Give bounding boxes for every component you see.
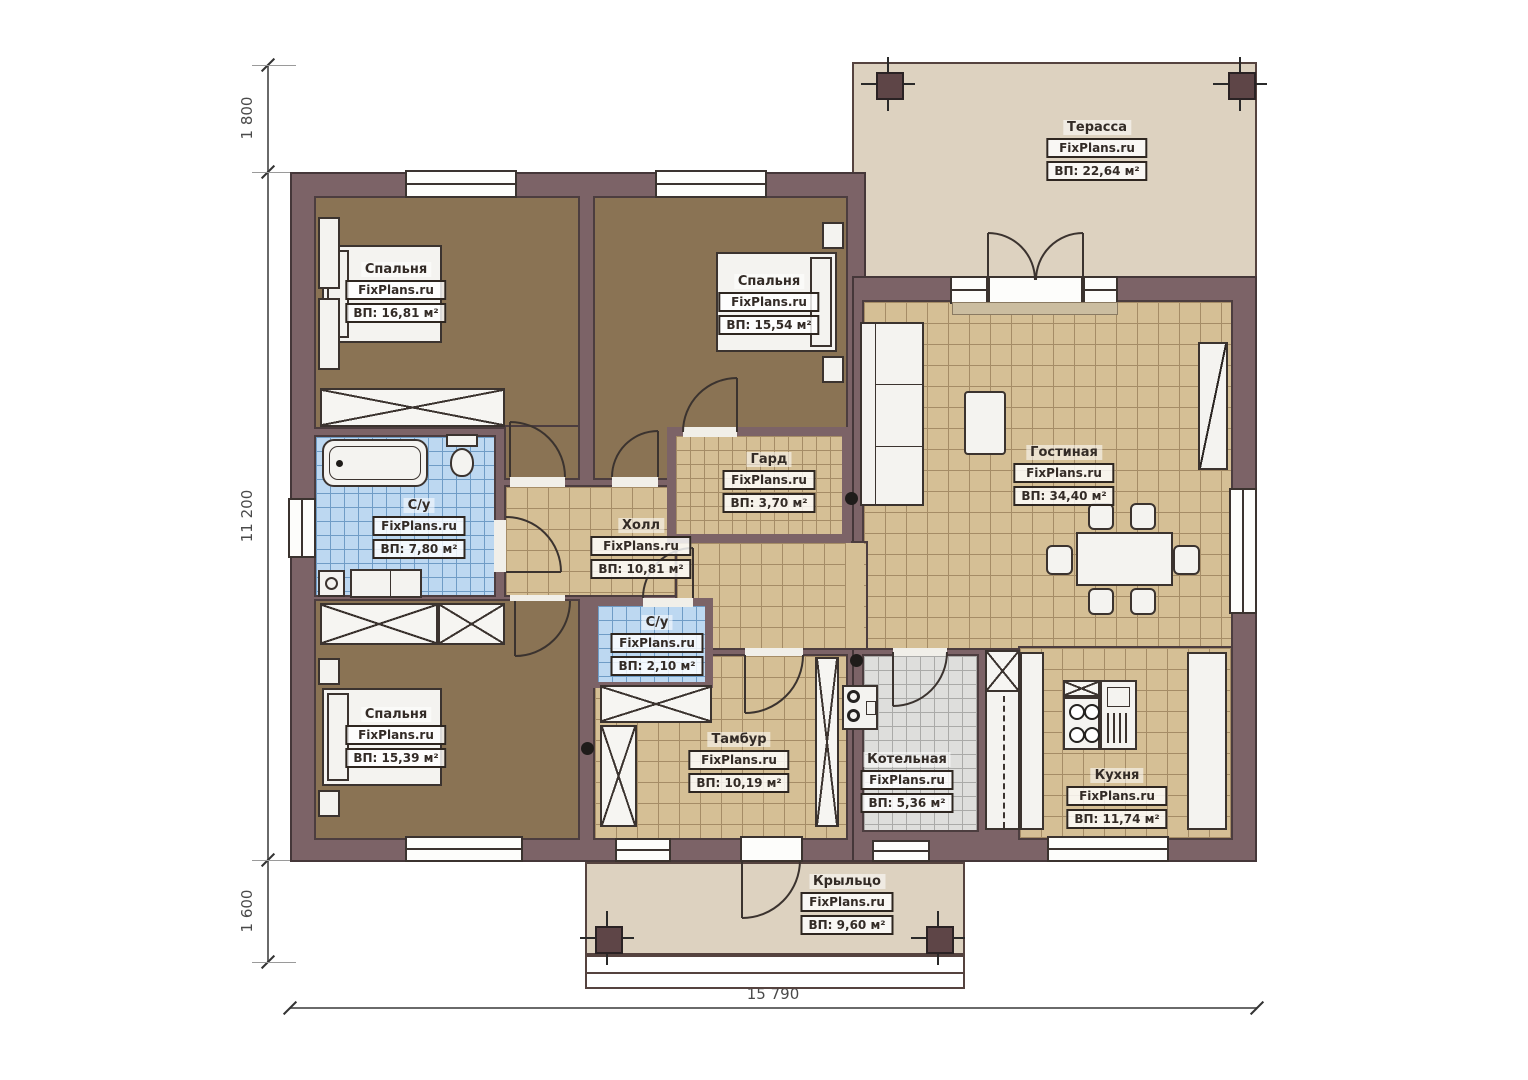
door-opening-wardrobe	[683, 427, 737, 437]
room-label-terrace: Терасса FixPlans.ru ВП: 22,64 м²	[1046, 116, 1147, 181]
dining-chair	[1130, 503, 1156, 530]
room-name: Гостиная	[1026, 445, 1102, 460]
sofa-back	[875, 324, 876, 504]
extension-line	[252, 65, 296, 66]
stove-burner	[1069, 704, 1085, 720]
door-opening-bedroom-top-left	[510, 477, 565, 487]
kitchen-counter-right	[1187, 652, 1227, 830]
window-kitchen	[1047, 836, 1169, 862]
terrace-door-mat	[952, 302, 1118, 315]
closet-vestibule-left	[600, 725, 637, 827]
pantry-dashed-line	[1003, 696, 1005, 828]
dimension-label-top-left: 1 800	[238, 86, 254, 150]
opening-hall-to-living	[846, 543, 864, 648]
nightstand	[822, 222, 844, 249]
closet-bedroom-top-left	[320, 388, 505, 427]
sofa	[860, 322, 924, 506]
dimension-line-bottom	[290, 1007, 1257, 1009]
room-area: ВП: 16,81 м²	[345, 303, 446, 323]
tv-cabinet	[1198, 342, 1228, 470]
boiler-unit	[842, 685, 878, 730]
brand-watermark: FixPlans.ru	[800, 892, 893, 912]
room-label-bathroom-main: С/у FixPlans.ru ВП: 7,80 м²	[372, 494, 465, 559]
toilet-tank	[446, 434, 478, 447]
door-opening-bedroom-bottom-left	[510, 595, 565, 601]
bathroom-vanity	[350, 569, 422, 598]
window-boiler-room	[872, 840, 930, 862]
boiler-dial	[847, 690, 860, 703]
dining-chair	[1046, 545, 1073, 575]
dining-chair	[1088, 503, 1114, 530]
entrance-door-threshold	[740, 836, 803, 862]
wall-dot	[845, 492, 858, 505]
wall-dot	[850, 654, 863, 667]
porch-steps	[585, 955, 965, 989]
bathtub-drain	[336, 460, 343, 467]
closet-front-dashed	[322, 643, 436, 645]
room-area: ВП: 2,10 м²	[610, 656, 703, 676]
terrace-door-threshold	[988, 276, 1083, 304]
room-name: Гард	[747, 452, 792, 467]
room-name: Спальня	[361, 707, 431, 722]
dining-chair	[1130, 588, 1156, 615]
wall-dot	[581, 742, 594, 755]
brand-watermark: FixPlans.ru	[688, 750, 789, 770]
door-opening-bathroom-main	[494, 520, 506, 572]
brand-watermark: FixPlans.ru	[372, 516, 465, 536]
brand-watermark: FixPlans.ru	[610, 633, 703, 653]
room-name: Спальня	[734, 274, 804, 289]
room-label-bedroom-bottom-left: Спальня FixPlans.ru ВП: 15,39 м²	[345, 703, 446, 768]
room-name: Терасса	[1063, 120, 1131, 135]
porch-deck	[585, 862, 965, 955]
door-opening-boiler-room	[893, 648, 947, 656]
nightstand	[318, 298, 340, 370]
room-area: ВП: 34,40 м²	[1013, 486, 1114, 506]
window-living-room	[1229, 488, 1257, 614]
toilet-bowl	[450, 448, 474, 477]
coffee-table	[964, 391, 1006, 455]
brand-watermark: FixPlans.ru	[1066, 786, 1167, 806]
sofa-cushion-line	[875, 446, 922, 447]
room-label-bathroom-small: С/у FixPlans.ru ВП: 2,10 м²	[610, 611, 703, 676]
room-area: ВП: 5,36 м²	[860, 793, 953, 813]
window-bedroom-top-middle	[655, 170, 767, 198]
room-area: ВП: 7,80 м²	[372, 539, 465, 559]
room-name: С/у	[642, 615, 673, 630]
room-label-bedroom-top-middle: Спальня FixPlans.ru ВП: 15,54 м²	[718, 270, 819, 335]
room-area: ВП: 10,81 м²	[590, 559, 691, 579]
extension-line	[252, 962, 296, 963]
closet-front-dashed	[602, 721, 710, 723]
floor-bedroom-top-left-nook	[506, 427, 578, 478]
pantry-shelf-x	[985, 650, 1020, 692]
room-area: ВП: 9,60 м²	[800, 915, 893, 935]
stove-burner	[1084, 727, 1100, 743]
kitchen-counter-left	[1020, 652, 1044, 830]
stove-burner	[1084, 704, 1100, 720]
closet-vestibule-top	[600, 685, 712, 723]
dimension-label-middle-left: 11 200	[238, 476, 254, 556]
step-edge	[587, 972, 963, 974]
vanity-divider	[390, 571, 391, 596]
brand-watermark: FixPlans.ru	[722, 470, 815, 490]
room-area: ВП: 15,54 м²	[718, 315, 819, 335]
window-terrace-right	[1083, 276, 1118, 304]
dining-table	[1076, 532, 1173, 586]
room-name: Котельная	[863, 752, 951, 767]
washer-drum	[325, 577, 338, 590]
room-label-kitchen: Кухня FixPlans.ru ВП: 11,74 м²	[1066, 764, 1167, 829]
closet-front-dashed	[322, 425, 503, 427]
closet-bedroom-bottom-left	[320, 603, 438, 645]
room-name: С/у	[404, 498, 435, 513]
dining-chair	[1173, 545, 1200, 575]
room-label-vestibule: Тамбур FixPlans.ru ВП: 10,19 м²	[688, 728, 789, 793]
room-name: Крыльцо	[809, 874, 885, 889]
fridge-vents	[1107, 713, 1130, 743]
dining-chair	[1088, 588, 1114, 615]
room-label-porch: Крыльцо FixPlans.ru ВП: 9,60 м²	[800, 870, 893, 935]
boiler-dial	[847, 709, 860, 722]
stove-burner	[1069, 727, 1085, 743]
window-bedroom-bottom-left	[405, 836, 523, 862]
brand-watermark: FixPlans.ru	[1013, 463, 1114, 483]
brand-watermark: FixPlans.ru	[718, 292, 819, 312]
window-vestibule	[615, 838, 671, 862]
room-name: Кухня	[1091, 768, 1144, 783]
room-area: ВП: 15,39 м²	[345, 748, 446, 768]
window-bathroom-main	[288, 498, 316, 558]
nightstand	[822, 356, 844, 383]
nightstand	[318, 658, 340, 685]
brand-watermark: FixPlans.ru	[590, 536, 691, 556]
door-opening-bedroom-top-middle	[612, 477, 658, 487]
dimension-line-left	[267, 65, 269, 962]
window-bedroom-top-left	[405, 170, 517, 198]
room-area: ВП: 22,64 м²	[1046, 161, 1147, 181]
dimension-label-bottom-left: 1 600	[238, 879, 254, 943]
closet-front-dashed	[440, 643, 503, 645]
room-label-hall: Холл FixPlans.ru ВП: 10,81 м²	[590, 514, 691, 579]
room-label-bedroom-top-left: Спальня FixPlans.ru ВП: 16,81 м²	[345, 258, 446, 323]
floor-plan: 1 800 11 200 1 600 15 790	[0, 0, 1528, 1080]
stove	[1063, 697, 1100, 750]
room-label-boiler-room: Котельная FixPlans.ru ВП: 5,36 м²	[860, 748, 953, 813]
bathtub	[322, 439, 428, 487]
door-opening-vestibule	[745, 648, 803, 656]
door-opening-bathroom-small	[643, 598, 693, 607]
room-name: Спальня	[361, 262, 431, 277]
kitchen-sink-unit	[1063, 680, 1100, 697]
room-name: Тамбур	[707, 732, 770, 747]
room-label-living-room: Гостиная FixPlans.ru ВП: 34,40 м²	[1013, 441, 1114, 506]
nightstand	[318, 790, 340, 817]
window-terrace-left	[950, 276, 988, 304]
room-area: ВП: 11,74 м²	[1066, 809, 1167, 829]
brand-watermark: FixPlans.ru	[860, 770, 953, 790]
brand-watermark: FixPlans.ru	[1046, 138, 1147, 158]
nightstand	[318, 217, 340, 289]
room-name: Холл	[618, 518, 664, 533]
brand-watermark: FixPlans.ru	[345, 280, 446, 300]
room-label-wardrobe: Гард FixPlans.ru ВП: 3,70 м²	[722, 448, 815, 513]
boiler-box	[866, 701, 876, 715]
closet-bedroom-bottom-left-2	[438, 603, 505, 645]
fridge	[1100, 680, 1137, 750]
room-area: ВП: 3,70 м²	[722, 493, 815, 513]
washing-machine	[318, 570, 345, 597]
fridge-top-door	[1107, 687, 1130, 707]
closet-kitchen-pantry	[985, 650, 1020, 830]
brand-watermark: FixPlans.ru	[345, 725, 446, 745]
closet-vestibule-right	[815, 657, 839, 827]
sofa-cushion-line	[875, 384, 922, 385]
room-area: ВП: 10,19 м²	[688, 773, 789, 793]
